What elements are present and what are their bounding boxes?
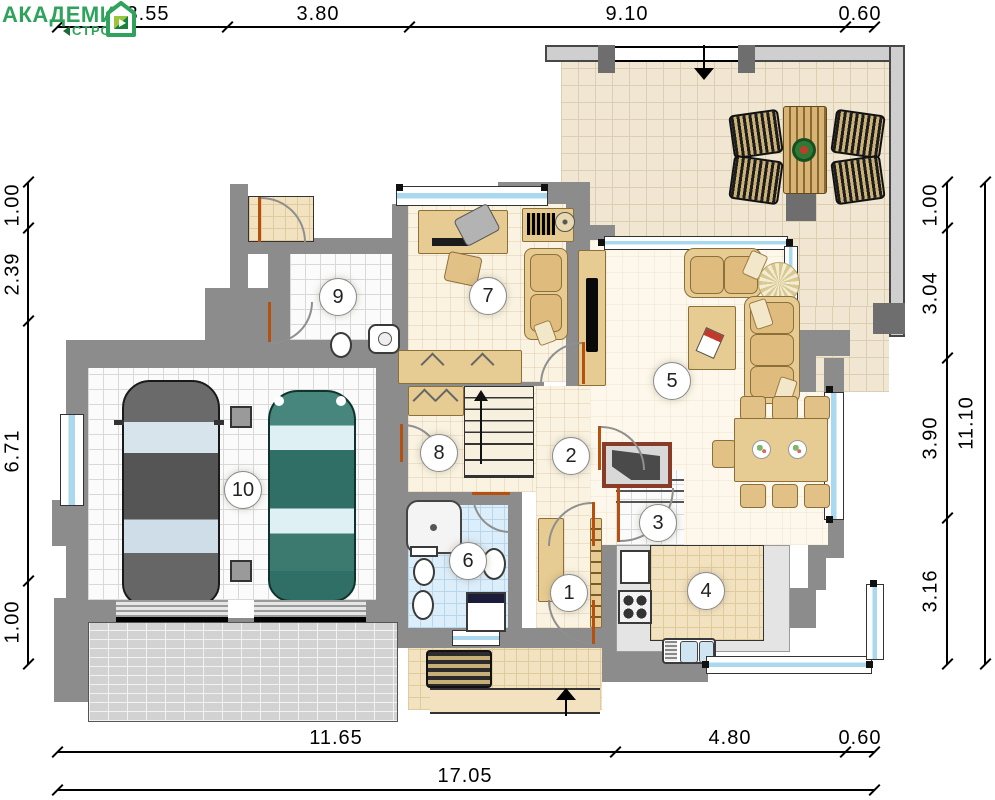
terrace-entry-stem	[703, 45, 705, 69]
wall	[873, 303, 905, 334]
terrace-chair	[728, 109, 784, 160]
room-number-badge: 5	[653, 362, 691, 400]
logo-house-icon	[106, 1, 136, 37]
window-post	[598, 239, 605, 246]
dimension-label: 0.60	[839, 727, 882, 750]
logo-arrow-icon	[63, 26, 70, 36]
dimension-label: 1.00	[2, 184, 25, 227]
room-number-badge: 10	[224, 471, 262, 509]
dining-chair	[740, 484, 766, 508]
wall	[52, 500, 68, 546]
door-leaf	[592, 502, 595, 546]
window-room7-bay	[396, 186, 548, 206]
dimension-label: 3.16	[920, 570, 943, 613]
boiler-dial	[378, 332, 392, 346]
toilet	[413, 558, 435, 586]
dimension-label: 4.80	[709, 727, 752, 750]
room-number-badge: 2	[552, 437, 590, 475]
sideboard-room7	[398, 350, 522, 384]
tv	[586, 278, 598, 352]
room-number: 2	[565, 445, 576, 468]
wall	[205, 288, 277, 342]
car-teal	[268, 390, 356, 602]
window-post	[702, 661, 709, 668]
room-number-badge: 8	[420, 434, 458, 472]
dining-chair	[740, 396, 766, 420]
entry-arrow-icon	[556, 688, 576, 700]
terrace-entry-arrow-icon	[694, 68, 714, 80]
terrace-step-line	[613, 60, 742, 62]
sofa-cushion	[690, 256, 724, 294]
wall	[508, 490, 522, 628]
terrace-chair	[830, 155, 886, 206]
room-number-badge: 4	[687, 572, 725, 610]
dimension-label: 6.71	[2, 430, 25, 473]
terrace-parapet	[740, 45, 905, 62]
dining-chair	[772, 484, 798, 508]
dining-table	[734, 418, 828, 482]
sink-drainer	[665, 641, 677, 661]
room-number: 7	[482, 285, 493, 308]
garage-door	[116, 600, 228, 622]
dimension-label: 1.00	[2, 601, 25, 644]
room-number-badge: 7	[469, 277, 507, 315]
room-number: 4	[700, 580, 711, 603]
stove-burners	[622, 594, 648, 620]
dimension-label: 3.04	[920, 272, 943, 315]
room-number: 5	[666, 370, 677, 393]
room-number: 10	[232, 479, 254, 502]
window-post	[786, 239, 793, 246]
dimension-label: 11.65	[309, 727, 363, 750]
terrace-chair	[830, 109, 886, 160]
terrace-chair	[728, 155, 784, 206]
fridge	[620, 550, 650, 584]
shower-drain	[430, 524, 437, 531]
car-dark	[122, 380, 220, 606]
terrace-parapet	[889, 45, 905, 337]
dining-chair	[712, 440, 736, 468]
dimension-label: 1.00	[920, 184, 943, 227]
wall	[598, 45, 615, 73]
toilet-tank	[410, 546, 438, 557]
wall	[66, 340, 418, 368]
car-dark-mirror	[214, 420, 224, 425]
garage-column	[230, 406, 252, 428]
stairs-landing	[464, 444, 534, 478]
garage-door	[254, 600, 366, 622]
window-garage	[60, 414, 84, 506]
dimension-line-right-total	[984, 182, 986, 664]
terrace-plant	[792, 138, 816, 162]
dining-chair	[804, 484, 830, 508]
dimension-line-right	[946, 182, 948, 664]
dimension-line-left	[27, 182, 29, 664]
audio-equipment	[527, 213, 555, 235]
floor-plan: 1 2 3 4 5 6 7 8 9 10 3.55 3.80 9.10 0.60…	[0, 0, 995, 800]
entry-arrow-stem	[565, 700, 567, 716]
terrace-step-line	[613, 46, 742, 48]
dining-chair	[772, 396, 798, 420]
door-leaf	[592, 600, 595, 644]
driveway	[88, 622, 398, 722]
wall	[54, 622, 90, 702]
window-post	[826, 386, 833, 393]
window-post	[870, 580, 877, 587]
dimension-label: 0.60	[839, 3, 882, 26]
stairs-arrow-stem	[480, 398, 482, 464]
dining-chair	[804, 396, 830, 420]
room-number-badge: 1	[550, 574, 588, 612]
dimension-label: 17.05	[437, 765, 492, 788]
washing-machine-panel	[468, 594, 504, 603]
dimension-line-top	[57, 26, 874, 28]
window-bath	[452, 630, 500, 646]
wall	[738, 45, 755, 73]
dimension-label: 9.10	[606, 3, 649, 26]
room-number: 1	[563, 582, 574, 605]
dimension-line-bottom	[57, 751, 874, 753]
room-number: 6	[462, 550, 473, 573]
car-teal-light	[336, 396, 346, 406]
door-leaf	[582, 342, 585, 384]
sink-basin	[680, 641, 698, 663]
dimension-label: 3.80	[297, 3, 340, 26]
window-kitchen-bottom	[706, 656, 872, 674]
car-dark-mirror	[114, 420, 124, 425]
window-kitchen-right	[866, 584, 884, 660]
stairs-arrow-icon	[474, 390, 488, 401]
window-post	[826, 516, 833, 523]
car-teal-light	[274, 396, 284, 406]
sofa-cushion	[530, 254, 562, 292]
terrace-pedestal	[786, 194, 816, 221]
room-number-badge: 3	[639, 504, 677, 542]
plate	[788, 440, 807, 459]
window-post	[396, 184, 403, 191]
bench	[426, 650, 492, 688]
dimension-label: 11.10	[956, 396, 979, 450]
bidet	[412, 590, 434, 620]
dimension-label: 3.90	[920, 417, 943, 460]
room-number-badge: 9	[319, 278, 357, 316]
window-post	[541, 184, 548, 191]
garage-column	[230, 560, 252, 582]
sofa-cushion	[750, 334, 794, 366]
room-number: 9	[332, 286, 343, 309]
dimension-line-bottom-total	[57, 789, 874, 791]
room-number-badge: 6	[449, 542, 487, 580]
speaker	[555, 212, 575, 232]
toilet-room9	[330, 332, 352, 358]
room-number: 3	[652, 512, 663, 535]
window-post	[866, 661, 873, 668]
dimension-label: 2.39	[2, 253, 25, 296]
plate	[752, 440, 771, 459]
room-number: 8	[433, 442, 444, 465]
wall	[790, 588, 816, 628]
